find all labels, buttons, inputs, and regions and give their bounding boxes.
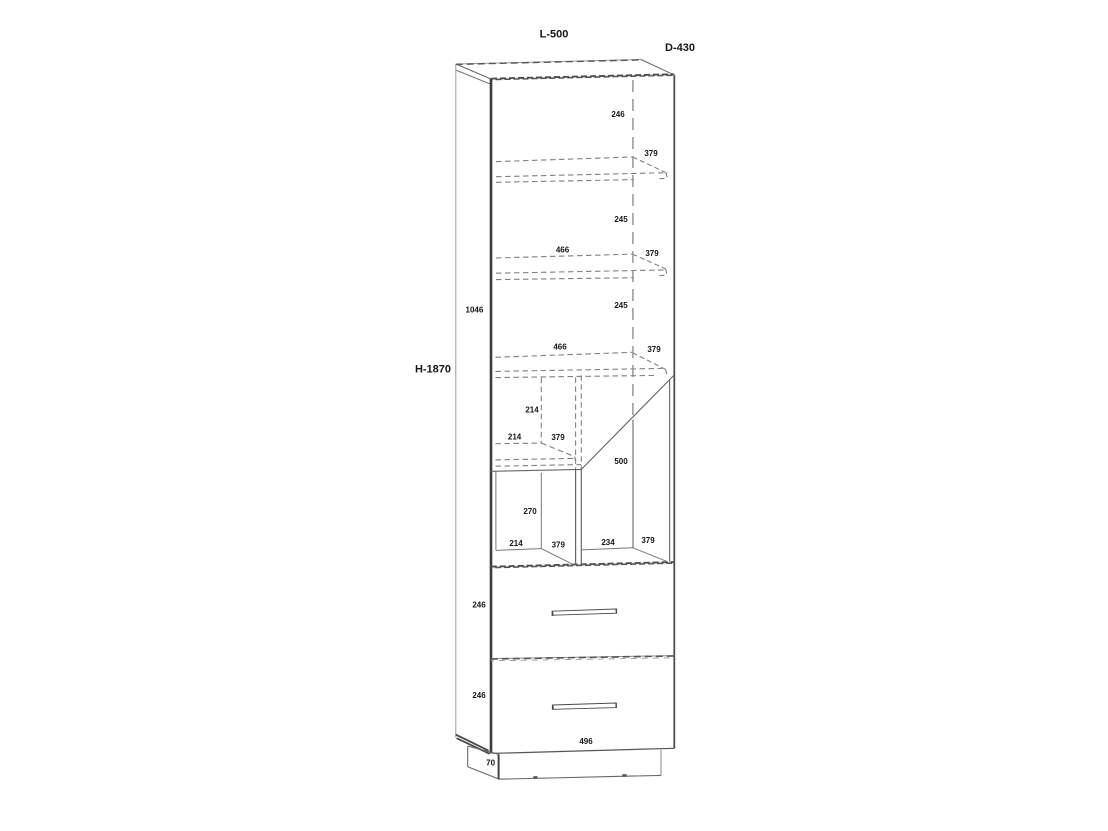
svg-text:245: 245 <box>614 301 628 310</box>
svg-text:466: 466 <box>556 245 570 254</box>
svg-text:379: 379 <box>645 249 659 258</box>
svg-text:246: 246 <box>472 691 486 700</box>
svg-text:379: 379 <box>641 536 655 545</box>
svg-text:270: 270 <box>523 507 537 516</box>
svg-text:70: 70 <box>486 758 495 767</box>
svg-text:379: 379 <box>644 149 658 158</box>
svg-text:214: 214 <box>508 433 522 442</box>
svg-text:214: 214 <box>509 539 523 548</box>
svg-text:500: 500 <box>614 457 628 466</box>
svg-text:379: 379 <box>551 433 565 442</box>
svg-text:234: 234 <box>601 538 615 547</box>
svg-text:214: 214 <box>525 405 539 414</box>
svg-text:379: 379 <box>552 540 566 549</box>
svg-text:246: 246 <box>472 601 486 610</box>
svg-text:D-430: D-430 <box>665 42 695 54</box>
svg-text:246: 246 <box>611 110 625 119</box>
svg-text:245: 245 <box>614 215 628 224</box>
svg-text:379: 379 <box>647 345 661 354</box>
svg-text:496: 496 <box>579 737 593 746</box>
svg-text:1046: 1046 <box>466 305 484 314</box>
svg-text:H-1870: H-1870 <box>415 363 451 375</box>
svg-text:466: 466 <box>553 342 567 351</box>
svg-text:L-500: L-500 <box>540 28 569 40</box>
